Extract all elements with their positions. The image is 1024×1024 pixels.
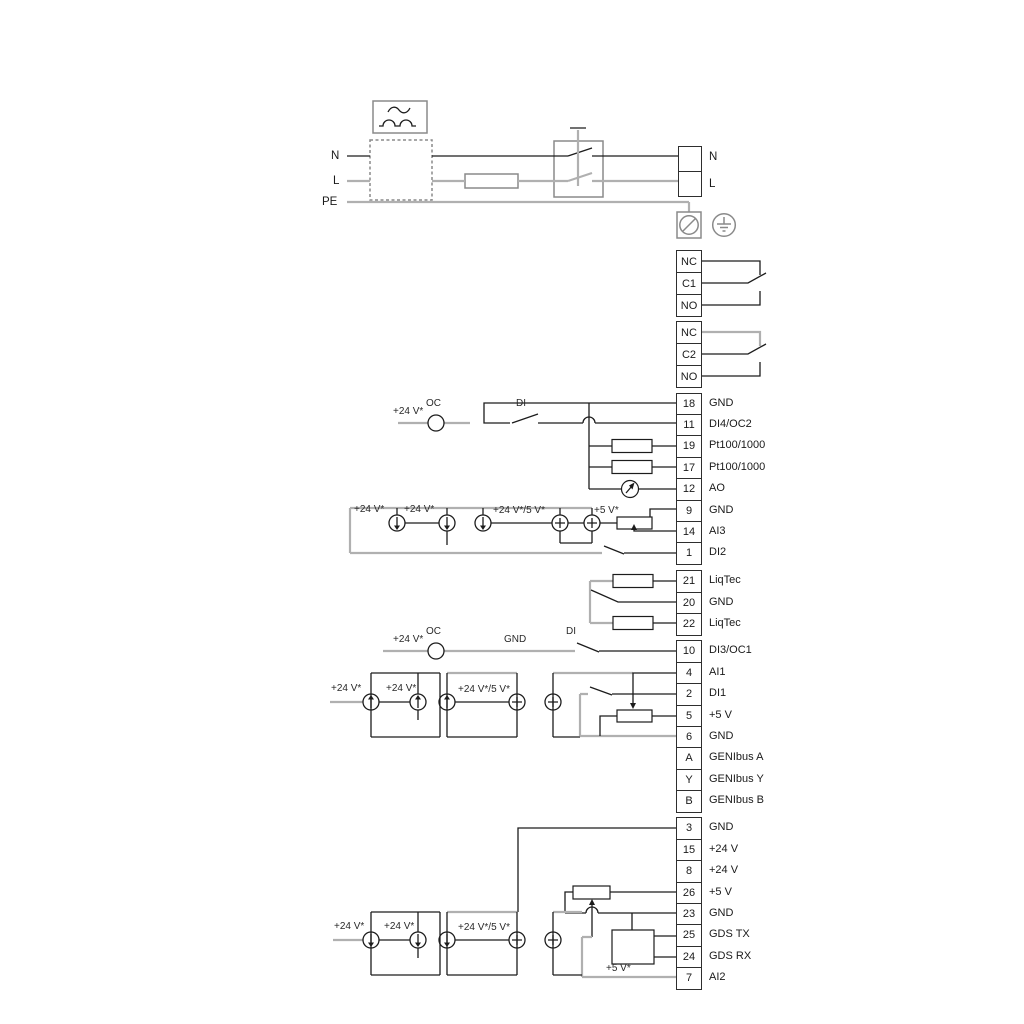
label-plus24v: +24 V*	[404, 504, 434, 515]
terminal-cell-B: B	[676, 790, 702, 813]
plus-icon	[548, 935, 558, 945]
liqtec-circuit	[590, 575, 676, 630]
terminal-cell-5: 5	[676, 705, 702, 728]
terminal-label-4: AI1	[709, 666, 726, 678]
terminal-cell-A: A	[676, 747, 702, 770]
relay1-terminal-NO: NO	[676, 294, 702, 317]
liqtec-bracket	[590, 581, 613, 623]
terminal-cell-3: 3	[676, 817, 702, 840]
arrow-up-icon	[444, 695, 450, 700]
relay2-contact	[702, 344, 766, 376]
mains-filter-box	[370, 140, 432, 200]
output-l-label: L	[709, 178, 715, 190]
plus-icon	[555, 518, 565, 528]
terminal-cell-10: 10	[676, 640, 702, 663]
terminal-label-25: GDS TX	[709, 928, 750, 940]
arrow-up-icon	[415, 695, 421, 700]
mains-n-label: N	[331, 150, 339, 162]
terminal-label-17: Pt100/1000	[709, 461, 765, 473]
mains-pe-label: PE	[322, 196, 337, 208]
pt100-resistor-2	[612, 461, 652, 474]
ladder2-gray-rails	[330, 673, 676, 736]
terminal-label-A: GENIbus A	[709, 751, 763, 763]
power-terminal-n	[678, 146, 702, 172]
pt100-resistor-1	[612, 440, 652, 453]
ai1-arrow	[630, 703, 636, 709]
terminal-cell-9: 9	[676, 500, 702, 523]
terminal-cell-26: 26	[676, 882, 702, 905]
relay-contacts	[702, 261, 766, 376]
terminal-cell-22: 22	[676, 613, 702, 636]
terminal-label-2: DI1	[709, 687, 726, 699]
output-n-label: N	[709, 151, 717, 163]
label-plus24v: +24 V*	[334, 921, 364, 932]
arrow-down-icon	[444, 526, 450, 531]
label-oc: OC	[426, 626, 441, 637]
fuse-symbol	[465, 174, 518, 188]
label-gnd: GND	[504, 634, 526, 645]
terminal-cell-24: 24	[676, 946, 702, 969]
terminal-label-24: GDS RX	[709, 950, 751, 962]
arrow-down-icon	[394, 526, 400, 531]
label-plus24v-5v: +24 V*/5 V*	[493, 505, 545, 516]
terminal-label-6: GND	[709, 730, 733, 742]
plus-icon	[512, 697, 522, 707]
arrow-down-icon	[480, 526, 486, 531]
terminal-label-Y: GENIbus Y	[709, 773, 764, 785]
terminal-cell-19: 19	[676, 435, 702, 458]
label-plus24v-5v: +24 V*/5 V*	[458, 922, 510, 933]
plus-icon	[587, 518, 597, 528]
wiring-diagram: N L PE N L +24 V* OC DI +24 V* +24 V* +2…	[0, 0, 1024, 1024]
label-plus5v: +5 V*	[594, 505, 619, 516]
switch-blade-l	[568, 173, 592, 181]
power-terminal-l	[678, 171, 702, 197]
arrow-down-icon	[444, 943, 450, 948]
terminal-label-3: GND	[709, 821, 733, 833]
label-plus5v: +5 V*	[606, 963, 631, 974]
arrow-down-icon	[415, 943, 421, 948]
plus-icon	[548, 697, 558, 707]
terminal-label-20: GND	[709, 596, 733, 608]
terminal-cell-20: 20	[676, 592, 702, 615]
terminal-cell-21: 21	[676, 570, 702, 593]
source-circles	[363, 415, 600, 948]
switch-blade-n	[568, 148, 592, 156]
potentiometer-3	[573, 886, 610, 899]
terminal-label-1: DI2	[709, 546, 726, 558]
ladder2-wires	[371, 673, 676, 737]
mains-l-label: L	[333, 175, 339, 187]
relay1-terminal-C1: C1	[676, 272, 702, 295]
liqtec-sensor-2	[613, 617, 653, 630]
analog-ladder-2	[330, 673, 676, 737]
terminal-cell-6: 6	[676, 726, 702, 749]
relay1-contact	[702, 261, 766, 305]
ac-source-symbol	[373, 101, 427, 133]
terminal-label-23: GND	[709, 907, 733, 919]
wiper-arrow-3	[589, 899, 595, 905]
terminal-label-11: DI4/OC2	[709, 418, 752, 430]
label-plus24v: +24 V*	[354, 504, 384, 515]
terminal-cell-25: 25	[676, 924, 702, 947]
pe-wire	[347, 202, 689, 212]
relay2-nc-wire	[702, 332, 760, 346]
label-plus24v: +24 V*	[393, 406, 423, 417]
arrow-up-icon	[368, 695, 374, 700]
relay2-terminal-C2: C2	[676, 343, 702, 366]
terminal-label-18: GND	[709, 397, 733, 409]
label-plus24v: +24 V*	[331, 683, 361, 694]
di3-switch	[577, 643, 676, 652]
pt100-ao-circuit	[589, 440, 676, 498]
terminal-cell-18: 18	[676, 393, 702, 416]
terminal-label-7: AI2	[709, 971, 726, 983]
earth-bars	[717, 217, 731, 231]
label-plus24v: +24 V*	[384, 921, 414, 932]
potentiometer-2	[617, 710, 652, 722]
terminal-cell-2: 2	[676, 683, 702, 706]
terminal-cell-Y: Y	[676, 769, 702, 792]
relay2-terminal-NC: NC	[676, 321, 702, 344]
terminal-label-9: GND	[709, 504, 733, 516]
terminal-cell-7: 7	[676, 967, 702, 990]
terminal-cell-1: 1	[676, 542, 702, 565]
terminal-label-26: +5 V	[709, 886, 732, 898]
terminal-cell-17: 17	[676, 457, 702, 480]
terminal-label-21: LiqTec	[709, 574, 741, 586]
terminal-label-19: Pt100/1000	[709, 439, 765, 451]
terminal-label-14: AI3	[709, 525, 726, 537]
terminal-cell-8: 8	[676, 860, 702, 883]
terminal-label-15: +24 V	[709, 843, 738, 855]
terminal-cell-11: 11	[676, 414, 702, 437]
terminal-cell-4: 4	[676, 662, 702, 685]
relay1-terminal-NC: NC	[676, 250, 702, 273]
terminal-label-22: LiqTec	[709, 617, 741, 629]
terminal-cell-14: 14	[676, 521, 702, 544]
terminal-cell-23: 23	[676, 903, 702, 926]
label-plus24v: +24 V*	[386, 683, 416, 694]
terminal-label-5: +5 V	[709, 709, 732, 721]
liqtec-sensor-1	[613, 575, 653, 588]
terminal-cell-15: 15	[676, 839, 702, 862]
label-di: DI	[566, 626, 576, 637]
di3-circuit	[383, 643, 676, 652]
gds-module-circuit	[518, 828, 676, 964]
gds-sensor-box	[612, 930, 654, 964]
terminal-label-10: DI3/OC1	[709, 644, 752, 656]
open-collector-icon	[428, 643, 444, 659]
label-plus24v: +24 V*	[393, 634, 423, 645]
label-oc: OC	[426, 398, 441, 409]
label-plus24v-5v: +24 V*/5 V*	[458, 684, 510, 695]
label-di: DI	[516, 398, 526, 409]
terminal-label-12: AO	[709, 482, 725, 494]
terminal-label-8: +24 V	[709, 864, 738, 876]
terminal-cell-12: 12	[676, 478, 702, 501]
relay2-terminal-NO: NO	[676, 365, 702, 388]
arrow-down-icon	[368, 943, 374, 948]
terminal-label-B: GENIbus B	[709, 794, 764, 806]
open-collector-icon	[428, 415, 444, 431]
plus-icon	[512, 935, 522, 945]
